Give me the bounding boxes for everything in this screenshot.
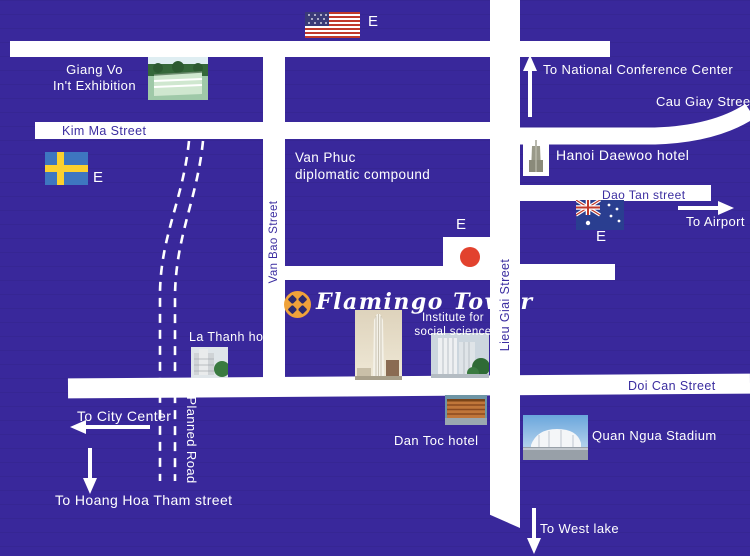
institute-social-science-photo: [431, 333, 489, 378]
up-arrow-conference-icon: [520, 55, 540, 117]
dao-tan-street-label: Dao Tan street: [602, 188, 685, 203]
city-center-label: To City Center: [77, 408, 171, 426]
sweden-flag-icon: [45, 152, 88, 185]
airport-label: To Airport: [686, 214, 745, 230]
hanoi-daewoo-photo: [523, 138, 549, 176]
embassy-marker-australia: E: [596, 228, 606, 245]
quan-ngua-label: Quan Ngua Stadium: [592, 428, 717, 444]
institute-label: Institute for social science: [413, 311, 493, 340]
planned-road-label: Planned Road: [183, 396, 199, 483]
dan-toc-hotel-photo: [445, 395, 487, 425]
road-mid-east: [519, 264, 615, 280]
giang-vo-exhibition-photo: [148, 57, 208, 100]
flamingo-logo-icon: [284, 291, 311, 318]
la-thanh-label: La Thanh hotel: [189, 330, 278, 346]
west-lake-label: To West lake: [540, 521, 619, 537]
la-thanh-hotel-photo: [191, 347, 228, 378]
quan-ngua-stadium-photo: [523, 415, 588, 460]
van-phuc-label: Van Phuc diplomatic compound: [295, 150, 430, 184]
conference-center-label: To National Conference Center: [543, 62, 733, 78]
giang-vo-label: Giang Vo In't Exhibition: [42, 62, 147, 95]
australia-flag-icon: [576, 200, 624, 230]
down-arrow-hoang-icon: [80, 448, 100, 494]
dan-toc-label: Dan Toc hotel: [394, 433, 478, 449]
japan-flag-icon: [443, 237, 497, 277]
cau-giay-street-label: Cau Giay Street: [656, 94, 750, 110]
embassy-marker-japan: E: [456, 216, 466, 233]
doi-can-street-label: Doi Can Street: [628, 379, 716, 395]
flamingo-tower-location-map: E E E E: [0, 0, 750, 556]
embassy-marker-us: E: [368, 13, 378, 30]
van-bao-street-label: Van Bao Street: [267, 201, 281, 284]
hoang-hoa-tham-label: To Hoang Hoa Tham street: [55, 492, 232, 510]
flamingo-tower-photo: [355, 310, 402, 380]
embassy-marker-sweden: E: [93, 169, 103, 186]
hanoi-daewoo-label: Hanoi Daewoo hotel: [556, 147, 689, 165]
kim-ma-street-label: Kim Ma Street: [62, 124, 146, 140]
lieu-giai-street-label: Lieu Giai Street: [498, 259, 514, 352]
us-flag-icon: [305, 12, 360, 38]
